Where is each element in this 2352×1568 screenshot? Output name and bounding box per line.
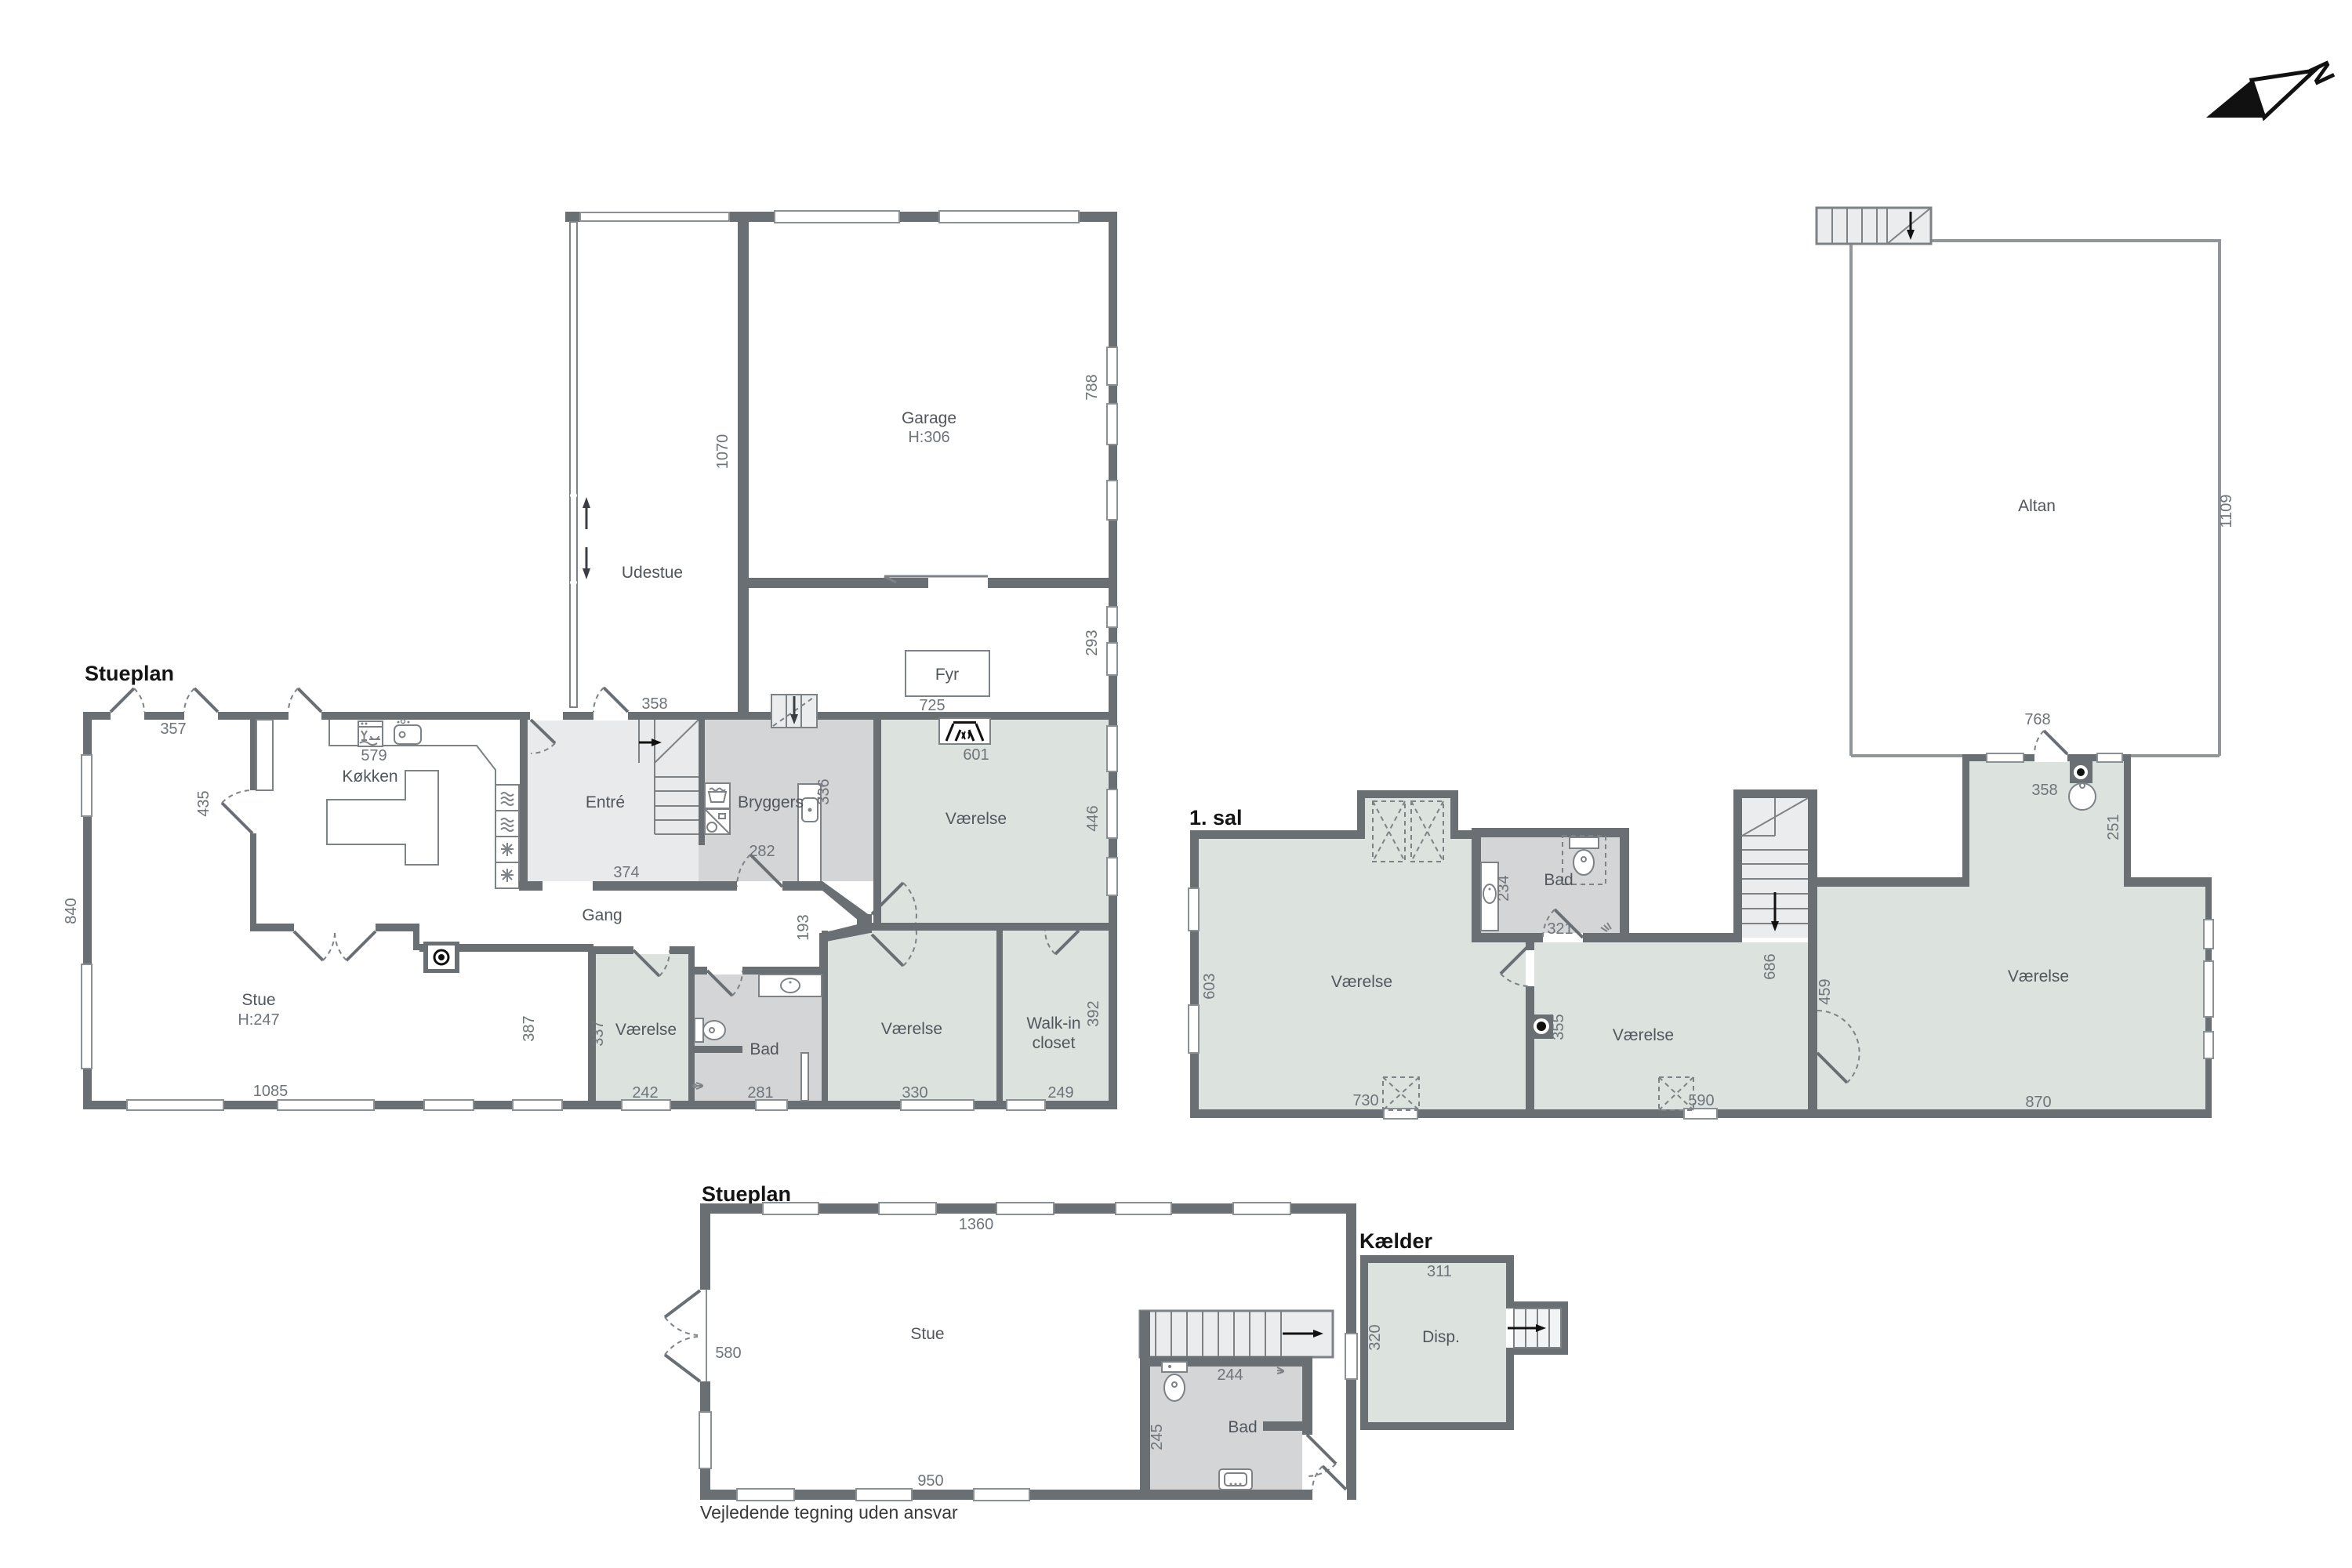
svg-text:387: 387	[521, 1015, 538, 1041]
svg-text:590: 590	[1688, 1092, 1714, 1109]
svg-text:Bad: Bad	[1544, 871, 1573, 889]
svg-text:1. sal: 1. sal	[1189, 806, 1243, 829]
svg-text:244: 244	[1217, 1367, 1243, 1384]
svg-text:Bad: Bad	[750, 1040, 779, 1058]
svg-text:337: 337	[590, 1020, 607, 1046]
svg-text:1109: 1109	[2218, 494, 2235, 528]
svg-text:Kælder: Kælder	[1359, 1229, 1433, 1253]
svg-text:579: 579	[361, 747, 387, 764]
svg-text:Walk-in: Walk-in	[1026, 1014, 1080, 1033]
svg-text:357: 357	[160, 720, 186, 738]
svg-text:Garage: Garage	[902, 409, 956, 427]
svg-text:686: 686	[1762, 953, 1779, 979]
svg-text:Fyr: Fyr	[935, 666, 959, 684]
svg-text:355: 355	[1550, 1014, 1567, 1040]
svg-text:242: 242	[632, 1084, 658, 1102]
svg-text:Værelse: Værelse	[881, 1020, 942, 1038]
svg-text:788: 788	[1083, 374, 1101, 400]
svg-text:336: 336	[815, 779, 833, 804]
svg-text:Værelse: Værelse	[1331, 973, 1392, 991]
svg-text:Værelse: Værelse	[946, 810, 1007, 828]
svg-text:234: 234	[1495, 875, 1512, 901]
svg-text:601: 601	[963, 746, 989, 764]
svg-text:768: 768	[2024, 711, 2050, 728]
svg-text:Disp.: Disp.	[1422, 1328, 1460, 1346]
svg-text:Bryggers: Bryggers	[738, 793, 804, 811]
svg-text:950: 950	[917, 1472, 943, 1490]
svg-text:Entré: Entré	[586, 793, 625, 811]
svg-text:320: 320	[1367, 1324, 1384, 1350]
svg-text:Gang: Gang	[582, 906, 622, 924]
svg-text:459: 459	[1817, 978, 1834, 1004]
svg-text:closet: closet	[1033, 1034, 1076, 1052]
svg-text:293: 293	[1083, 630, 1101, 655]
svg-text:Køkken: Køkken	[342, 768, 397, 786]
svg-text:251: 251	[2105, 814, 2122, 840]
svg-text:245: 245	[1149, 1424, 1166, 1450]
svg-text:603: 603	[1201, 973, 1218, 999]
svg-text:193: 193	[795, 914, 812, 940]
svg-text:H:306: H:306	[908, 429, 949, 446]
svg-text:249: 249	[1047, 1084, 1073, 1102]
svg-text:H:247: H:247	[238, 1011, 279, 1029]
svg-text:870: 870	[2025, 1094, 2051, 1111]
svg-text:Vejledende tegning uden ansvar: Vejledende tegning uden ansvar	[700, 1502, 958, 1523]
svg-text:1070: 1070	[714, 434, 731, 470]
svg-text:1085: 1085	[253, 1083, 289, 1100]
svg-text:Værelse: Værelse	[1613, 1026, 1674, 1044]
svg-text:580: 580	[715, 1345, 741, 1362]
svg-text:358: 358	[641, 695, 667, 713]
svg-text:358: 358	[2031, 782, 2057, 799]
svg-text:281: 281	[747, 1084, 773, 1102]
svg-text:Udestue: Udestue	[622, 564, 683, 582]
svg-text:Stueplan: Stueplan	[85, 662, 174, 685]
svg-text:321: 321	[1547, 920, 1573, 938]
svg-text:435: 435	[195, 790, 212, 816]
svg-text:446: 446	[1084, 805, 1102, 831]
svg-text:Værelse: Værelse	[615, 1021, 677, 1039]
svg-text:Altan: Altan	[2018, 497, 2056, 515]
svg-text:840: 840	[63, 898, 80, 924]
svg-text:Stue: Stue	[910, 1325, 944, 1343]
svg-text:730: 730	[1352, 1092, 1378, 1109]
svg-text:392: 392	[1085, 1000, 1102, 1026]
svg-text:Stue: Stue	[241, 991, 275, 1009]
svg-text:374: 374	[613, 864, 639, 881]
svg-text:311: 311	[1427, 1263, 1452, 1280]
svg-text:330: 330	[902, 1084, 927, 1102]
svg-text:Bad: Bad	[1228, 1418, 1257, 1436]
svg-text:Værelse: Værelse	[2008, 967, 2069, 985]
svg-text:1360: 1360	[959, 1216, 994, 1233]
svg-text:725: 725	[919, 697, 945, 714]
